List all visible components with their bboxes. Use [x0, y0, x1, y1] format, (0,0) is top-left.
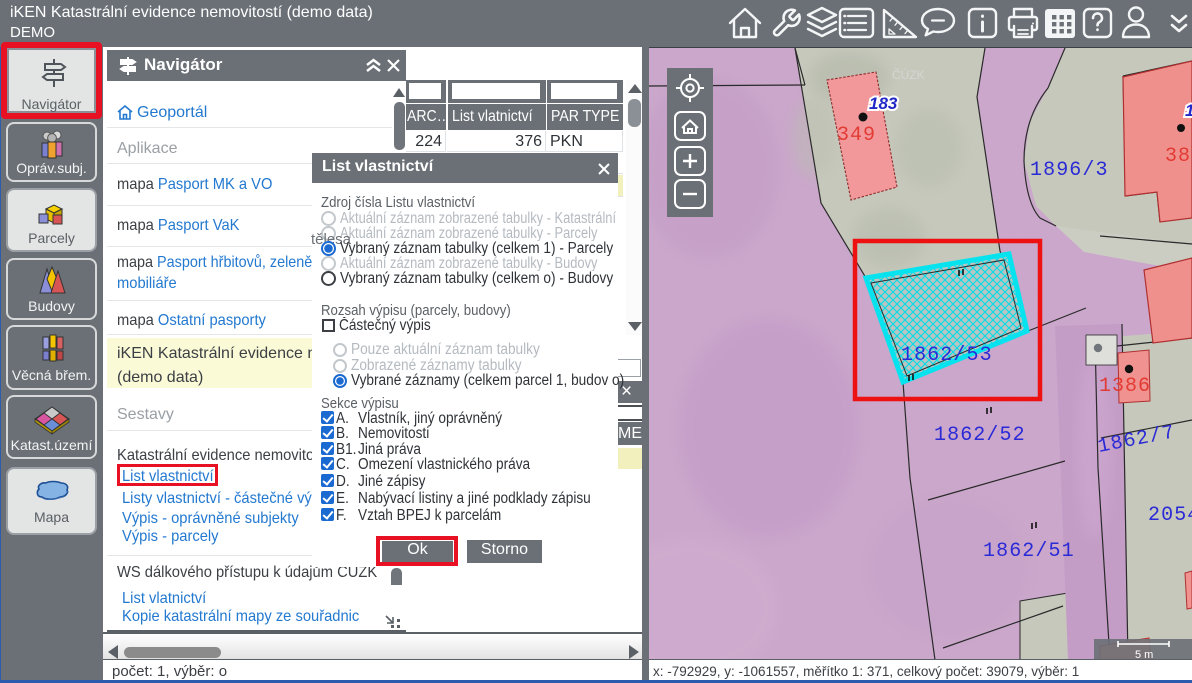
svg-text:5 m: 5 m [1135, 649, 1153, 659]
svg-text:1: 1 [1185, 101, 1192, 120]
svg-text:ČÚZK: ČÚZK [892, 67, 925, 82]
svg-text:1896/3: 1896/3 [1030, 159, 1109, 182]
svg-text:1862/53: 1862/53 [901, 344, 993, 367]
svg-text:1862/51: 1862/51 [983, 540, 1075, 563]
svg-text:1386: 1386 [1099, 375, 1151, 398]
svg-text:38: 38 [1165, 145, 1191, 168]
svg-text:349: 349 [837, 124, 876, 147]
svg-text:1862/52: 1862/52 [934, 424, 1026, 447]
svg-text:183: 183 [869, 94, 898, 113]
svg-text:2054: 2054 [1148, 504, 1192, 527]
